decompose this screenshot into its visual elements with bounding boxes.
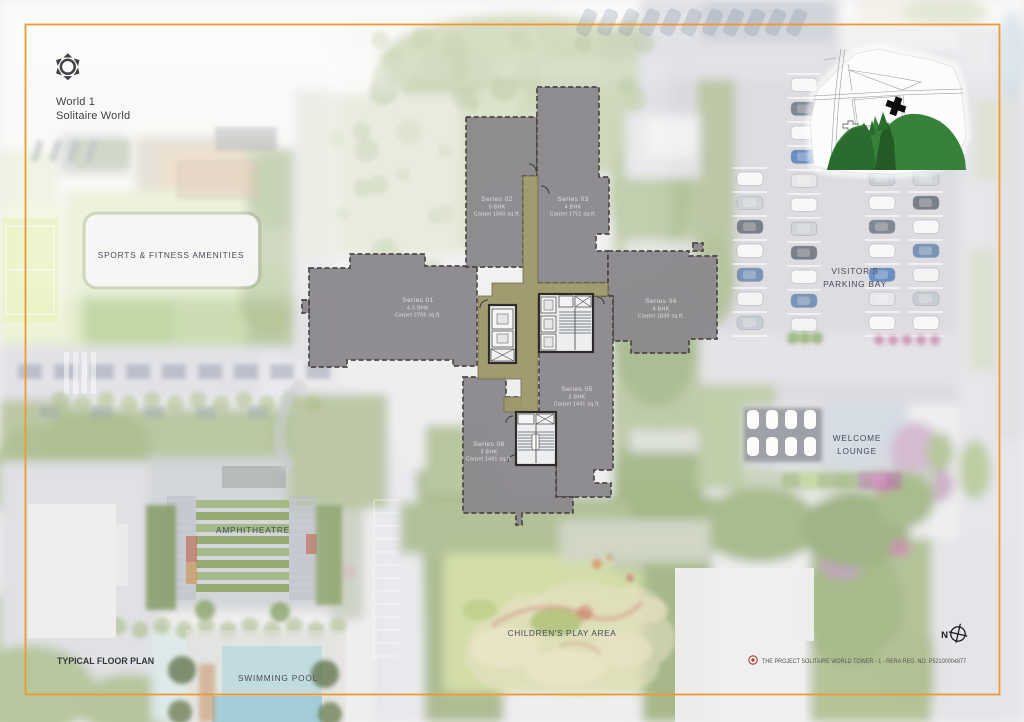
svg-text:Series 03: Series 03 <box>557 196 588 203</box>
svg-text:N: N <box>941 630 948 641</box>
svg-text:THE PROJECT SOLITAIRE WORLD TO: THE PROJECT SOLITAIRE WORLD TOWER - 1 - … <box>762 658 966 665</box>
svg-text:3 BHK: 3 BHK <box>480 450 497 456</box>
svg-text:Series 06: Series 06 <box>473 441 504 448</box>
svg-text:Carpet 1560 sq.ft.: Carpet 1560 sq.ft. <box>474 212 520 218</box>
svg-text:Carpet 1491 sq.ft.: Carpet 1491 sq.ft. <box>466 457 512 463</box>
svg-text:Series 01: Series 01 <box>402 297 433 304</box>
svg-text:4 BHK: 4 BHK <box>564 205 581 211</box>
svg-text:4.5 BHK: 4.5 BHK <box>407 306 429 312</box>
svg-text:Carpet 1441 sq.ft.: Carpet 1441 sq.ft. <box>554 402 600 408</box>
svg-text:3 BHK: 3 BHK <box>568 395 585 401</box>
svg-text:3 BHK: 3 BHK <box>488 205 505 211</box>
svg-text:Carpet 1752 sq.ft.: Carpet 1752 sq.ft. <box>550 212 596 218</box>
svg-text:Carpet 2765 sq.ft.: Carpet 2765 sq.ft. <box>395 313 441 319</box>
svg-text:Carpet 1838 sq.ft.: Carpet 1838 sq.ft. <box>638 314 684 320</box>
svg-text:Series 02: Series 02 <box>481 196 512 203</box>
svg-text:Series 05: Series 05 <box>561 386 592 393</box>
svg-text:Series 04: Series 04 <box>645 298 676 305</box>
svg-text:4 BHK: 4 BHK <box>652 307 669 313</box>
